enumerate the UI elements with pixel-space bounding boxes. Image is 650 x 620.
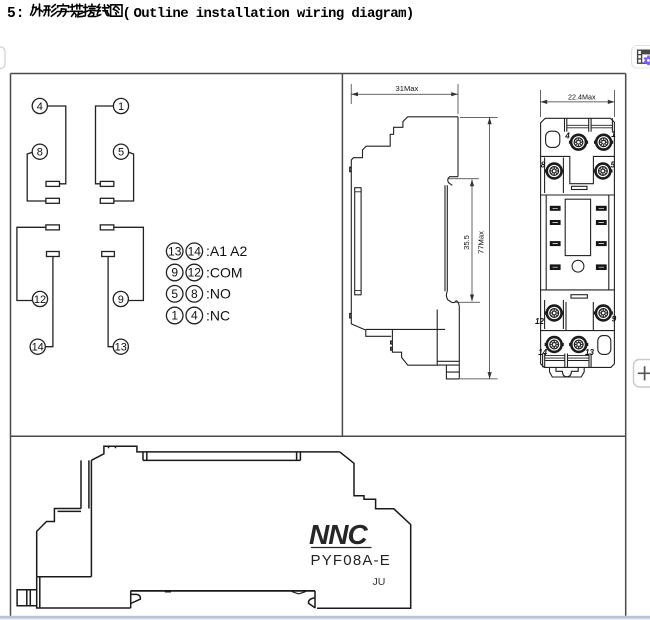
svg-text:14: 14	[538, 348, 547, 357]
svg-text:1: 1	[118, 101, 124, 113]
svg-text:9: 9	[171, 266, 178, 280]
svg-text:8: 8	[541, 161, 546, 170]
svg-text:14: 14	[188, 244, 202, 258]
svg-text:5: 5	[611, 161, 616, 170]
svg-text:8: 8	[37, 147, 43, 159]
svg-text:4: 4	[37, 101, 43, 113]
svg-text:13: 13	[585, 348, 594, 357]
svg-text:12: 12	[188, 266, 202, 280]
svg-text:JU: JU	[373, 576, 386, 588]
svg-text:31Max: 31Max	[396, 84, 419, 93]
svg-text:5: 5	[171, 287, 178, 301]
svg-text:9: 9	[118, 294, 124, 306]
svg-text:9: 9	[612, 314, 617, 323]
svg-text::NC: :NC	[206, 307, 230, 323]
svg-text:1: 1	[611, 130, 616, 139]
svg-text:Outline installation wiring di: Outline installation wiring diagram)	[134, 6, 414, 22]
svg-text:77Max: 77Max	[476, 231, 485, 254]
svg-text:8: 8	[191, 287, 198, 301]
svg-text::A1 A2: :A1 A2	[206, 243, 247, 259]
svg-text:5:: 5:	[7, 6, 24, 22]
svg-text:(: (	[123, 6, 131, 22]
svg-text:5: 5	[118, 147, 124, 159]
svg-text:22.4Max: 22.4Max	[568, 92, 596, 101]
svg-text:12: 12	[535, 317, 544, 326]
svg-text::NO: :NO	[206, 286, 231, 302]
svg-text:PYF08A-E: PYF08A-E	[311, 552, 391, 569]
svg-text:1: 1	[171, 309, 178, 323]
svg-text:13: 13	[115, 342, 127, 354]
svg-text:4: 4	[564, 132, 570, 141]
svg-text:14: 14	[32, 342, 44, 354]
svg-text:4: 4	[191, 309, 198, 323]
svg-text:35.5: 35.5	[462, 235, 471, 250]
svg-text::COM: :COM	[206, 264, 243, 280]
svg-text:NNC: NNC	[309, 519, 368, 550]
svg-text:12: 12	[34, 294, 46, 306]
svg-text:13: 13	[168, 245, 182, 259]
